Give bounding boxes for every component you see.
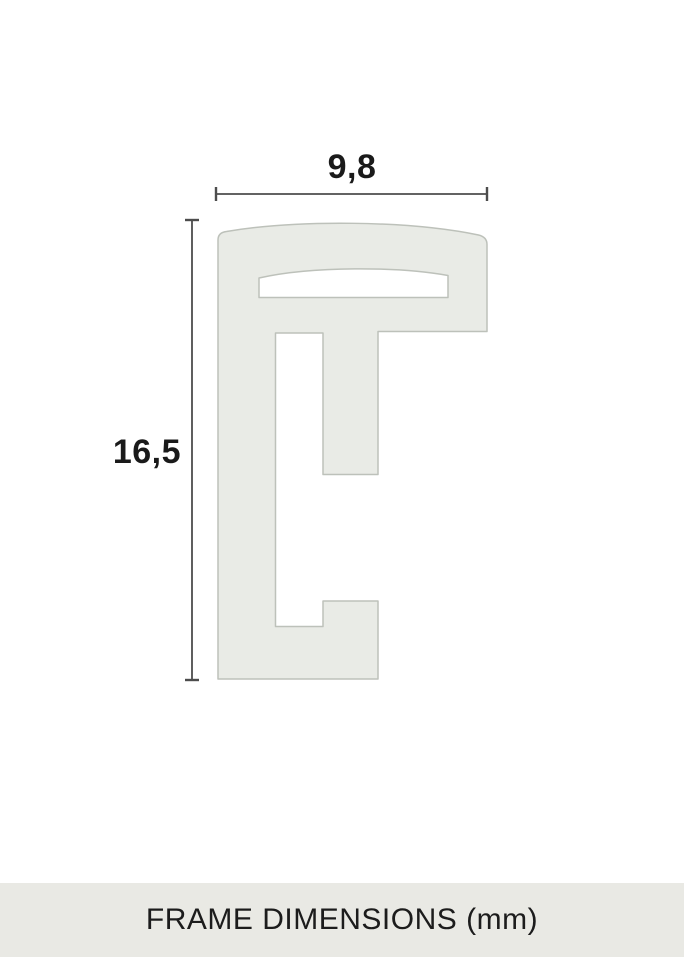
frame-profile-diagram: 9,8 16,5 bbox=[0, 0, 684, 957]
caption-band: FRAME DIMENSIONS (mm) bbox=[0, 883, 684, 957]
width-dimension-label: 9,8 bbox=[252, 150, 452, 184]
caption-text: FRAME DIMENSIONS (mm) bbox=[146, 903, 538, 937]
height-dimension-line bbox=[185, 220, 199, 680]
width-dimension-line bbox=[216, 187, 487, 201]
profile-drawing bbox=[0, 0, 684, 957]
frame-profile-slot bbox=[259, 269, 448, 298]
height-dimension-label: 16,5 bbox=[61, 435, 181, 469]
